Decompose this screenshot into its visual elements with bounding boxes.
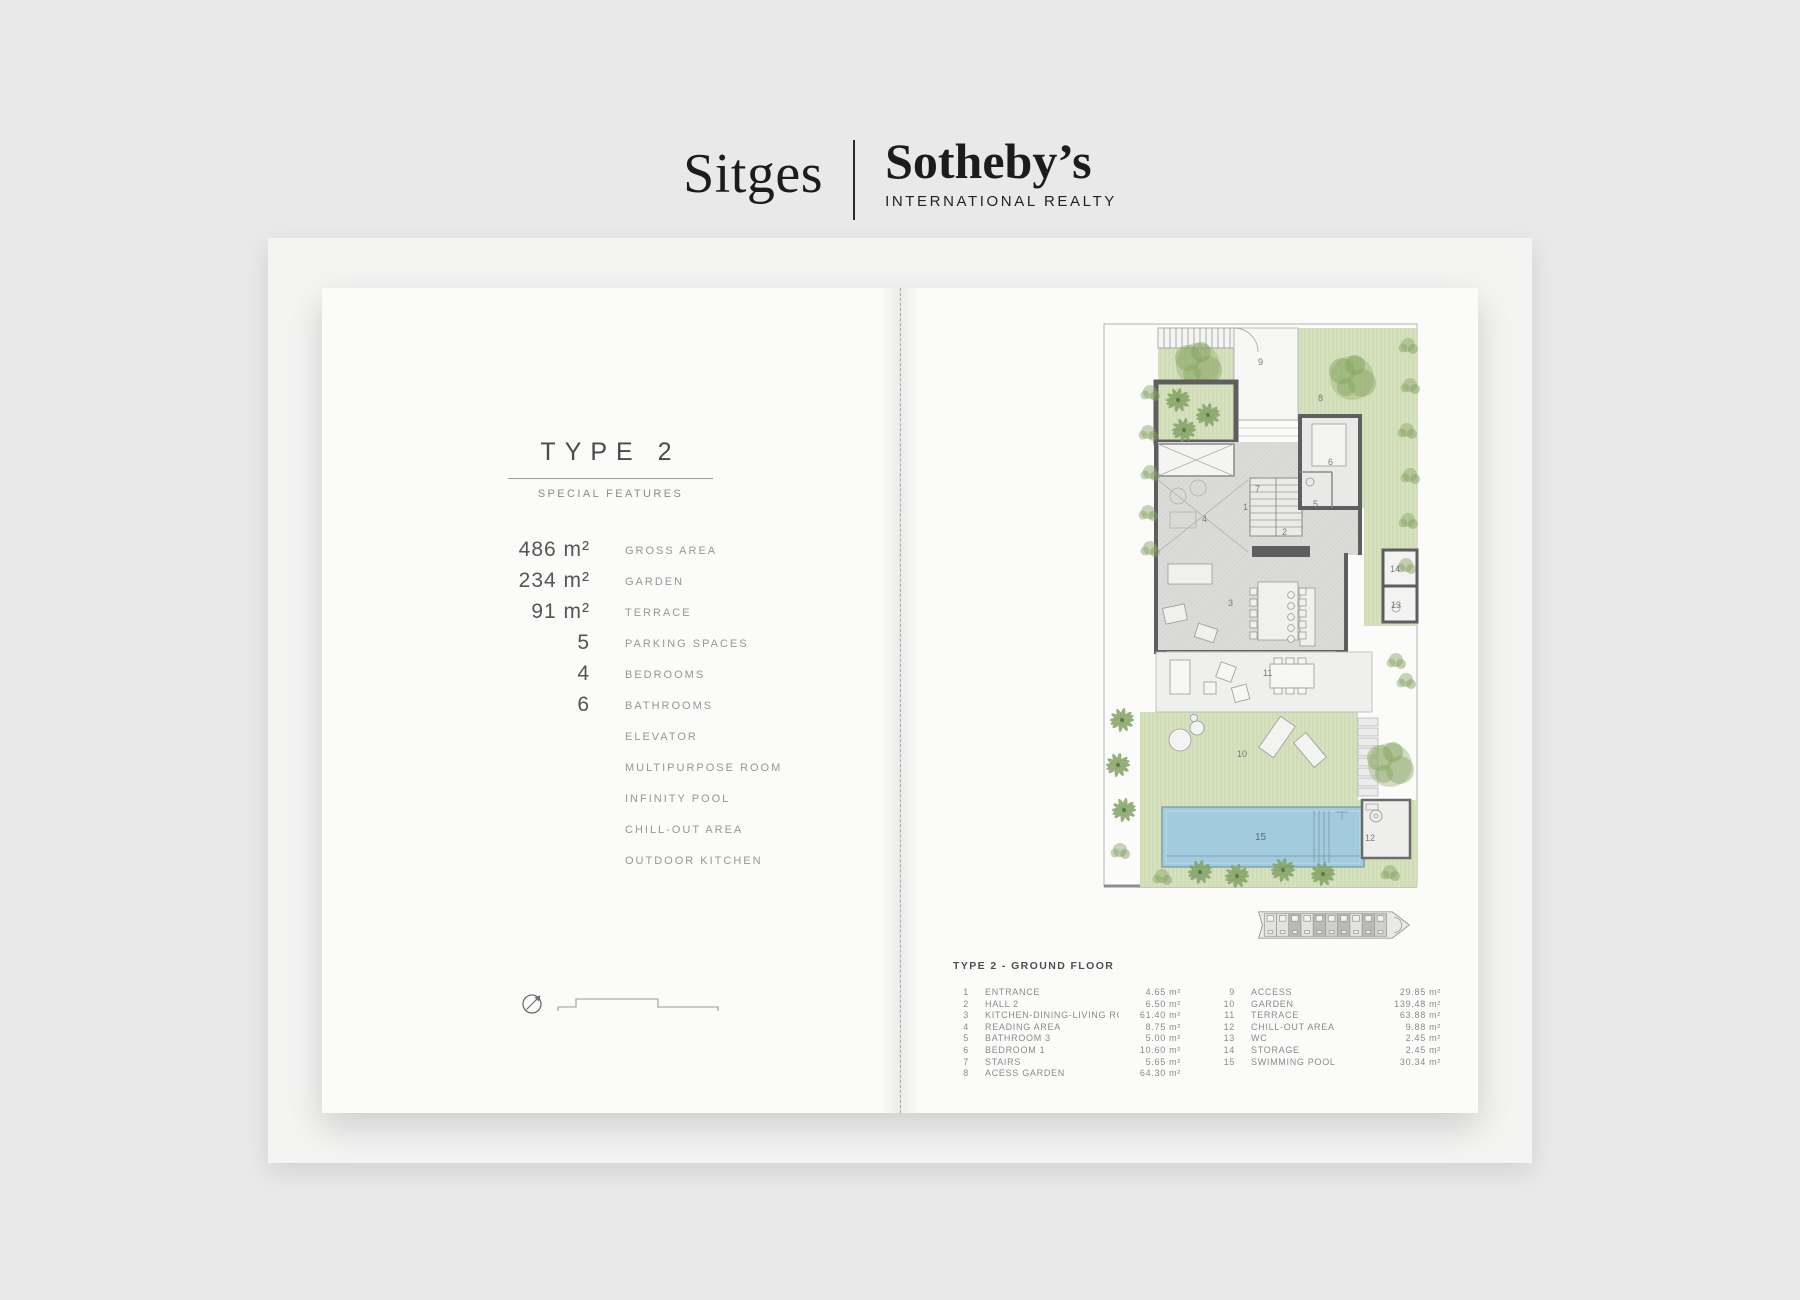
legend-column-2: 9ACCESS29.85 m² 10GARDEN139.48 m² 11TERR… bbox=[1219, 987, 1441, 1080]
terrace bbox=[1156, 652, 1372, 712]
feature-row: 5PARKING SPACES bbox=[440, 627, 800, 658]
legend-name: READING AREA bbox=[985, 1022, 1119, 1034]
open-spread: TYPE 2 SPECIAL FEATURES 486 m²GROSS AREA… bbox=[322, 288, 1478, 1113]
brochure-photo: Sitges Sotheby’s INTERNATIONAL REALTY TY… bbox=[0, 0, 1800, 1300]
legend-name: GARDEN bbox=[1251, 999, 1379, 1011]
feature-value: 91 m² bbox=[440, 600, 590, 624]
legend-row: 8ACESS GARDEN64.30 m² bbox=[953, 1068, 1181, 1080]
legend-row: 3KITCHEN-DINING-LIVING ROOM61.40 m² bbox=[953, 1010, 1181, 1022]
legend-name: STAIRS bbox=[985, 1057, 1119, 1069]
legend-row: 1ENTRANCE4.65 m² bbox=[953, 987, 1181, 999]
feature-row: CHILL-OUT AREA bbox=[440, 813, 800, 844]
room-label-6: 6 bbox=[1328, 457, 1333, 467]
legend-area: 29.85 m² bbox=[1379, 987, 1441, 999]
legend-row: 9ACCESS29.85 m² bbox=[1219, 987, 1441, 999]
legend-area: 139.48 m² bbox=[1379, 999, 1441, 1011]
legend-area: 30.34 m² bbox=[1379, 1057, 1441, 1069]
legend-num: 8 bbox=[953, 1068, 969, 1080]
feature-row: ELEVATOR bbox=[440, 720, 800, 751]
feature-label: BEDROOMS bbox=[625, 667, 705, 681]
legend-num: 2 bbox=[953, 999, 969, 1011]
legend-name: STORAGE bbox=[1251, 1045, 1379, 1057]
legend-area: 63.88 m² bbox=[1379, 1010, 1441, 1022]
chill-out-area bbox=[1362, 800, 1410, 858]
feature-row: 4BEDROOMS bbox=[440, 658, 800, 689]
elevator bbox=[1158, 444, 1234, 476]
legend-area: 61.40 m² bbox=[1119, 1010, 1181, 1022]
unit-locator-strip bbox=[1253, 903, 1413, 947]
room-label-14: 14 bbox=[1390, 564, 1400, 574]
feature-row: 486 m²GROSS AREA bbox=[440, 534, 800, 565]
legend-area: 5.00 m² bbox=[1119, 1033, 1181, 1045]
feature-label: PARKING SPACES bbox=[625, 636, 749, 650]
feature-label: INFINITY POOL bbox=[625, 791, 730, 805]
feature-label: TERRACE bbox=[625, 605, 692, 619]
feature-label: GARDEN bbox=[625, 574, 684, 588]
legend-num: 6 bbox=[953, 1045, 969, 1057]
feature-value: 234 m² bbox=[440, 569, 590, 593]
legend-num: 11 bbox=[1219, 1010, 1235, 1022]
legend-num: 5 bbox=[953, 1033, 969, 1045]
brand-city: Sitges bbox=[683, 146, 823, 202]
legend-name: CHILL-OUT AREA bbox=[1251, 1022, 1379, 1034]
legend-name: BATHROOM 3 bbox=[985, 1033, 1119, 1045]
legend-area: 8.75 m² bbox=[1119, 1022, 1181, 1034]
legend-num: 7 bbox=[953, 1057, 969, 1069]
legend-area: 5.65 m² bbox=[1119, 1057, 1181, 1069]
plan-legend: TYPE 2 - GROUND FLOOR 1ENTRANCE4.65 m² 2… bbox=[953, 960, 1443, 1080]
legend-area: 2.45 m² bbox=[1379, 1045, 1441, 1057]
legend-num: 4 bbox=[953, 1022, 969, 1034]
legend-row: 6BEDROOM 110.60 m² bbox=[953, 1045, 1181, 1057]
feature-row: OUTDOOR KITCHEN bbox=[440, 844, 800, 875]
feature-row: INFINITY POOL bbox=[440, 782, 800, 813]
legend-num: 1 bbox=[953, 987, 969, 999]
brand-name: Sotheby’s bbox=[885, 134, 1117, 189]
title-rule bbox=[508, 478, 713, 479]
room-label-1: 1 bbox=[1243, 502, 1248, 512]
brand-divider bbox=[853, 140, 855, 220]
book-spine bbox=[880, 288, 920, 1113]
legend-row: 2HALL 26.50 m² bbox=[953, 999, 1181, 1011]
feature-row: 234 m²GARDEN bbox=[440, 565, 800, 596]
legend-num: 12 bbox=[1219, 1022, 1235, 1034]
feature-value: 5 bbox=[440, 631, 590, 655]
legend-num: 3 bbox=[953, 1010, 969, 1022]
feature-label: OUTDOOR KITCHEN bbox=[625, 853, 763, 867]
feature-label: BATHROOMS bbox=[625, 698, 713, 712]
room-9-access bbox=[1234, 328, 1298, 436]
north-arrow-and-section-profile bbox=[518, 986, 730, 1022]
legend-row: 11TERRACE63.88 m² bbox=[1219, 1010, 1441, 1022]
legend-name: SWIMMING POOL bbox=[1251, 1057, 1379, 1069]
feature-label: CHILL-OUT AREA bbox=[625, 822, 743, 836]
legend-num: 15 bbox=[1219, 1057, 1235, 1069]
features-list: 486 m²GROSS AREA 234 m²GARDEN 91 m²TERRA… bbox=[440, 534, 800, 875]
room-label-10: 10 bbox=[1237, 749, 1247, 759]
feature-row: 6BATHROOMS bbox=[440, 689, 800, 720]
legend-num: 14 bbox=[1219, 1045, 1235, 1057]
feature-value: 486 m² bbox=[440, 538, 590, 562]
legend-row: 13WC2.45 m² bbox=[1219, 1033, 1441, 1045]
feature-label: ELEVATOR bbox=[625, 729, 698, 743]
legend-name: BEDROOM 1 bbox=[985, 1045, 1119, 1057]
brand-tagline: INTERNATIONAL REALTY bbox=[885, 193, 1117, 210]
section-profile-line bbox=[558, 999, 718, 1011]
legend-name: TERRACE bbox=[1251, 1010, 1379, 1022]
floor-plan: 1 2 3 4 5 6 7 8 9 10 11 12 13 14 15 bbox=[1100, 320, 1430, 895]
legend-name: ACCESS bbox=[1251, 987, 1379, 999]
room-label-15: 15 bbox=[1255, 832, 1267, 843]
feature-row: MULTIPURPOSE ROOM bbox=[440, 751, 800, 782]
room-label-7: 7 bbox=[1255, 484, 1260, 494]
legend-name: WC bbox=[1251, 1033, 1379, 1045]
room-label-2: 2 bbox=[1282, 527, 1287, 537]
legend-area: 9.88 m² bbox=[1379, 1022, 1441, 1034]
legend-column-1: 1ENTRANCE4.65 m² 2HALL 26.50 m² 3KITCHEN… bbox=[953, 987, 1181, 1080]
legend-row: 15SWIMMING POOL30.34 m² bbox=[1219, 1057, 1441, 1069]
legend-num: 9 bbox=[1219, 987, 1235, 999]
legend-row: 5BATHROOM 35.00 m² bbox=[953, 1033, 1181, 1045]
legend-row: 4READING AREA8.75 m² bbox=[953, 1022, 1181, 1034]
feature-label: GROSS AREA bbox=[625, 543, 717, 557]
room-label-8: 8 bbox=[1318, 393, 1323, 403]
feature-row: 91 m²TERRACE bbox=[440, 596, 800, 627]
legend-area: 10.60 m² bbox=[1119, 1045, 1181, 1057]
legend-area: 2.45 m² bbox=[1379, 1033, 1441, 1045]
legend-area: 4.65 m² bbox=[1119, 987, 1181, 999]
room-label-9: 9 bbox=[1258, 357, 1263, 367]
legend-name: ACESS GARDEN bbox=[985, 1068, 1119, 1080]
room-label-5: 5 bbox=[1313, 499, 1318, 509]
room-label-12: 12 bbox=[1365, 833, 1375, 843]
legend-num: 10 bbox=[1219, 999, 1235, 1011]
locator-units bbox=[1264, 914, 1386, 937]
legend-area: 6.50 m² bbox=[1119, 999, 1181, 1011]
room-label-4: 4 bbox=[1202, 514, 1207, 524]
brand-logo: Sitges Sotheby’s INTERNATIONAL REALTY bbox=[0, 118, 1800, 220]
feature-value: 6 bbox=[440, 693, 590, 717]
legend-row: 14STORAGE2.45 m² bbox=[1219, 1045, 1441, 1057]
legend-name: KITCHEN-DINING-LIVING ROOM bbox=[985, 1010, 1119, 1022]
feature-label: MULTIPURPOSE ROOM bbox=[625, 760, 782, 774]
feature-value: 4 bbox=[440, 662, 590, 686]
room-label-13: 13 bbox=[1391, 600, 1401, 610]
north-arrow-icon bbox=[523, 995, 541, 1013]
legend-title: TYPE 2 - GROUND FLOOR bbox=[953, 960, 1443, 972]
room-label-11: 11 bbox=[1263, 668, 1272, 678]
patio-garden bbox=[1156, 382, 1236, 442]
legend-name: HALL 2 bbox=[985, 999, 1119, 1011]
legend-name: ENTRANCE bbox=[985, 987, 1119, 999]
page-subtitle: SPECIAL FEATURES bbox=[488, 488, 733, 500]
room-label-3: 3 bbox=[1228, 598, 1233, 608]
legend-row: 7STAIRS5.65 m² bbox=[953, 1057, 1181, 1069]
legend-row: 12CHILL-OUT AREA9.88 m² bbox=[1219, 1022, 1441, 1034]
page-title: TYPE 2 bbox=[508, 438, 713, 467]
legend-row: 10GARDEN139.48 m² bbox=[1219, 999, 1441, 1011]
legend-num: 13 bbox=[1219, 1033, 1235, 1045]
brand-right: Sotheby’s INTERNATIONAL REALTY bbox=[885, 134, 1117, 210]
storage-wc-block bbox=[1383, 550, 1417, 622]
legend-area: 64.30 m² bbox=[1119, 1068, 1181, 1080]
